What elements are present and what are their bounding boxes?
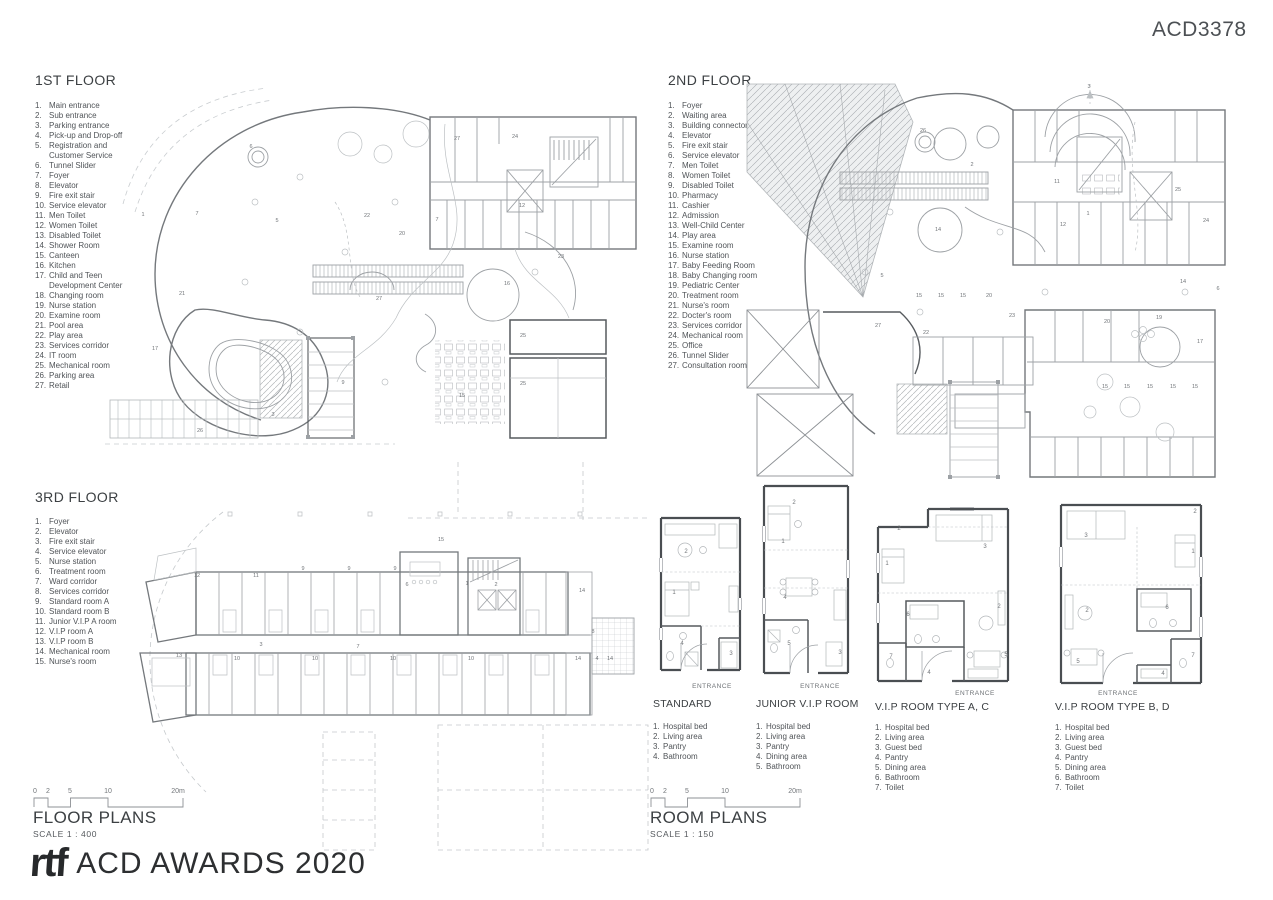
svg-text:27: 27 (875, 323, 881, 329)
svg-text:21: 21 (179, 291, 185, 297)
room-legend-item: 5.Dining area (875, 763, 975, 773)
escalator-band (313, 282, 463, 294)
svg-text:14: 14 (607, 656, 613, 662)
svg-text:26: 26 (197, 428, 203, 434)
svg-text:2: 2 (970, 162, 973, 168)
terrace-grid (592, 618, 634, 674)
third-floor-title: 3RD FLOOR (35, 489, 119, 505)
svg-text:24: 24 (512, 134, 518, 140)
furniture (768, 506, 846, 673)
room-legend-item: 3.Pantry (653, 742, 748, 752)
room-legend-item: 7.Toilet (875, 783, 975, 793)
svg-text:22: 22 (923, 330, 929, 336)
svg-text:9: 9 (301, 566, 304, 572)
svg-text:10: 10 (390, 656, 396, 662)
svg-text:15: 15 (938, 293, 944, 299)
svg-text:15: 15 (1124, 384, 1130, 390)
room-legend-item: 3.Guest bed (1055, 743, 1155, 753)
junior-vip-room-plan: 21453 (756, 480, 856, 685)
svg-text:2: 2 (684, 549, 688, 555)
svg-text:7: 7 (1191, 653, 1195, 659)
svg-text:17: 17 (152, 346, 158, 352)
entrance-label: ENTRANCE (945, 690, 1005, 697)
windows (877, 508, 975, 624)
svg-text:20m: 20m (171, 788, 185, 795)
interior-mid (913, 94, 1225, 477)
second-floor-plan: 3262111252412145151515202327222019146171… (745, 82, 1245, 482)
svg-text:14: 14 (935, 227, 941, 233)
ramp-hatch (897, 384, 947, 434)
svg-text:15: 15 (459, 393, 465, 399)
third-floor-plan: 12119996151213310101010148144147 (128, 460, 648, 855)
interior-light (110, 121, 606, 438)
svg-text:1: 1 (672, 590, 676, 596)
svg-text:12: 12 (519, 203, 525, 209)
entrance-label: ENTRANCE (790, 683, 850, 690)
svg-text:23: 23 (558, 254, 564, 260)
svg-text:11: 11 (253, 573, 259, 579)
svg-text:3: 3 (1084, 533, 1088, 539)
svg-text:25: 25 (1175, 187, 1181, 193)
svg-text:3: 3 (259, 642, 262, 648)
room-legend-item: 5.Bathroom (756, 762, 856, 772)
svg-text:20: 20 (1104, 319, 1110, 325)
junior-vip-room-title: JUNIOR V.I.P ROOM (756, 698, 859, 710)
escalator-band (840, 172, 988, 184)
svg-text:22: 22 (364, 213, 370, 219)
waiting-seats (1080, 172, 1120, 198)
junior-vip-room-list: 1.Hospital bed 2.Living area 3.Pantry 4.… (756, 722, 856, 772)
svg-text:14: 14 (1180, 279, 1186, 285)
svg-text:15: 15 (916, 293, 922, 299)
svg-text:27: 27 (454, 136, 460, 142)
vip-room-ac-plan: 21326745 (870, 503, 1015, 689)
room-legend-item: 6.Bathroom (1055, 773, 1155, 783)
room-legend-item: 2.Living area (875, 733, 975, 743)
svg-text:0: 0 (33, 788, 37, 795)
site-ghost (150, 462, 648, 850)
svg-text:9: 9 (393, 566, 396, 572)
room-legend-item: 4.Pantry (875, 753, 975, 763)
room-legend-item: 4.Pantry (1055, 753, 1155, 763)
building-outline (140, 552, 590, 722)
svg-text:15: 15 (960, 293, 966, 299)
svg-text:4: 4 (1161, 671, 1165, 677)
svg-text:12: 12 (1060, 222, 1066, 228)
svg-text:3: 3 (729, 651, 733, 657)
entrance-label: ENTRANCE (1088, 690, 1148, 697)
standard-room-title: STANDARD (653, 698, 712, 710)
zone-dashes (1061, 527, 1201, 589)
svg-text:2: 2 (997, 604, 1001, 610)
svg-text:12: 12 (194, 573, 200, 579)
svg-text:4: 4 (680, 641, 684, 647)
outer-walls (1061, 505, 1201, 683)
second-floor-title: 2ND FLOOR (668, 72, 752, 88)
windows (1060, 547, 1203, 637)
room-plans-title: ROOM PLANS (650, 808, 767, 828)
svg-text:15: 15 (438, 537, 444, 543)
svg-text:2: 2 (494, 582, 497, 588)
svg-text:15: 15 (1192, 384, 1198, 390)
svg-text:7: 7 (195, 211, 198, 217)
furniture (882, 515, 1007, 681)
svg-text:4: 4 (927, 670, 931, 676)
svg-text:10: 10 (312, 656, 318, 662)
zone-dashes (764, 550, 848, 588)
svg-text:10: 10 (104, 788, 112, 795)
room-legend-item: 2.Living area (756, 732, 856, 742)
svg-text:26: 26 (920, 128, 926, 134)
svg-text:1: 1 (141, 212, 144, 218)
svg-text:27: 27 (376, 296, 382, 302)
floor-plans-title: FLOOR PLANS (33, 808, 156, 828)
room-legend-item: 4.Dining area (756, 752, 856, 762)
room-legend-item: 2.Living area (1055, 733, 1155, 743)
svg-text:6: 6 (249, 144, 252, 150)
room-legend-item: 3.Pantry (756, 742, 856, 752)
svg-text:5: 5 (1076, 659, 1080, 665)
zone-dashes (661, 572, 740, 626)
svg-text:1: 1 (1086, 211, 1089, 217)
svg-text:9: 9 (341, 380, 344, 386)
room-legend-item: 3.Guest bed (875, 743, 975, 753)
svg-text:1: 1 (885, 561, 889, 567)
windows (763, 526, 850, 614)
svg-text:25: 25 (520, 381, 526, 387)
svg-text:5: 5 (880, 273, 883, 279)
svg-text:10: 10 (468, 656, 474, 662)
room-legend-item: 1.Hospital bed (653, 722, 748, 732)
heavy-walls (823, 312, 920, 374)
svg-text:15: 15 (1170, 384, 1176, 390)
vip-bd-room-list: 1.Hospital bed 2.Living area 3.Guest bed… (1055, 723, 1155, 793)
room-legend-item: 7.Toilet (1055, 783, 1155, 793)
room-legend-item: 5.Dining area (1055, 763, 1155, 773)
footer-logo: rtf ACD AWARDS 2020 (30, 841, 366, 886)
svg-text:10: 10 (721, 788, 729, 795)
svg-text:6: 6 (1165, 605, 1169, 611)
vip-ac-room-title: V.I.P ROOM TYPE A, C (875, 701, 989, 713)
svg-text:5: 5 (685, 788, 689, 795)
scalebar-profile (34, 798, 183, 807)
svg-text:20m: 20m (788, 788, 802, 795)
svg-text:10: 10 (234, 656, 240, 662)
floor-plans-scale: SCALE 1 : 400 (33, 829, 97, 839)
room-legend-item: 1.Hospital bed (1055, 723, 1155, 733)
svg-text:8: 8 (591, 629, 594, 635)
svg-text:17: 17 (1197, 339, 1203, 345)
svg-text:16: 16 (504, 281, 510, 287)
standard-room-plan: 2143 (653, 510, 748, 682)
svg-text:23: 23 (1009, 313, 1015, 319)
interior-light (152, 512, 582, 686)
vip-ac-room-list: 1.Hospital bed 2.Living area 3.Guest bed… (875, 723, 975, 793)
svg-text:2: 2 (1085, 608, 1089, 614)
room-legend-item: 6.Bathroom (875, 773, 975, 783)
svg-text:3: 3 (983, 544, 987, 550)
svg-text:15: 15 (1102, 384, 1108, 390)
svg-text:14: 14 (575, 656, 581, 662)
award-title: ACD AWARDS 2020 (76, 847, 366, 881)
vip-bd-room-title: V.I.P ROOM TYPE B, D (1055, 701, 1170, 713)
canteen-seating (435, 340, 505, 424)
svg-text:6: 6 (405, 582, 408, 588)
outer-walls (878, 509, 1008, 681)
svg-text:11: 11 (1054, 179, 1060, 185)
entrance-label: ENTRANCE (682, 683, 742, 690)
vip-room-bd-plan: 23126547 (1053, 497, 1208, 689)
svg-text:5: 5 (787, 641, 791, 647)
partitions (661, 626, 740, 670)
svg-text:20: 20 (399, 231, 405, 237)
svg-text:20: 20 (986, 293, 992, 299)
svg-text:7: 7 (356, 644, 359, 650)
svg-text:7: 7 (889, 654, 893, 660)
svg-text:2: 2 (792, 500, 796, 506)
first-floor-plan: 17652122202724712231627252515326179 (95, 82, 645, 457)
svg-text:25: 25 (520, 333, 526, 339)
svg-text:6: 6 (1216, 286, 1219, 292)
escalator-band (840, 188, 988, 200)
svg-text:2: 2 (1193, 509, 1197, 515)
room-legend-item: 1.Hospital bed (875, 723, 975, 733)
svg-text:15: 15 (1147, 384, 1153, 390)
svg-text:4: 4 (595, 656, 598, 662)
standard-room-list: 1.Hospital bed 2.Living area 3.Pantry 4.… (653, 722, 748, 762)
presentation-sheet: ACD3378 1ST FLOOR 1.Main entrance 2.Sub … (0, 0, 1273, 900)
rtf-logo: rtf (28, 841, 67, 886)
room-legend-item: 4.Bathroom (653, 752, 748, 762)
escalator-band (313, 265, 463, 277)
svg-text:7: 7 (435, 217, 438, 223)
scalebar-profile (651, 798, 800, 807)
svg-text:24: 24 (1203, 218, 1209, 224)
room-plans-scale: SCALE 1 : 150 (650, 829, 714, 839)
svg-text:1: 1 (465, 581, 468, 587)
svg-text:9: 9 (347, 566, 350, 572)
svg-text:3: 3 (271, 412, 274, 418)
svg-text:19: 19 (1156, 315, 1162, 321)
svg-text:0: 0 (650, 788, 654, 795)
sheet-code: ACD3378 (1152, 18, 1247, 42)
room-legend-item: 2.Living area (653, 732, 748, 742)
room-legend-item: 1.Hospital bed (756, 722, 856, 732)
svg-text:5: 5 (275, 218, 278, 224)
svg-text:13: 13 (176, 653, 182, 659)
svg-text:3: 3 (1087, 84, 1090, 90)
svg-text:2: 2 (663, 788, 667, 795)
svg-text:2: 2 (46, 788, 50, 795)
svg-text:5: 5 (68, 788, 72, 795)
svg-text:14: 14 (579, 588, 585, 594)
column-markers (306, 336, 355, 439)
